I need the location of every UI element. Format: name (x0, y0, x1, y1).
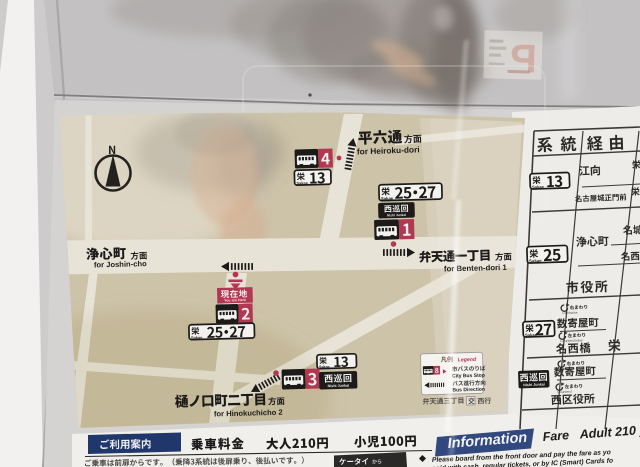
svg-text:Sakae: Sakae (532, 184, 545, 189)
svg-text:P: P (510, 37, 538, 82)
svg-text:Sakae: Sakae (381, 196, 394, 201)
svg-text:Sakae: Sakae (319, 365, 330, 369)
svg-text:Bus Direction: Bus Direction (452, 387, 485, 394)
svg-text:Legend: Legend (458, 357, 477, 364)
svg-text:Nishi Junkai: Nishi Junkai (387, 213, 406, 218)
svg-text:Fare: Fare (542, 428, 569, 444)
svg-text:You are Here: You are Here (224, 298, 246, 303)
svg-text:Countercl: Countercl (557, 390, 572, 395)
svg-text:City Bus Stop: City Bus Stop (452, 373, 485, 380)
svg-text:Clockwise: Clockwise (562, 311, 578, 316)
svg-text:Sakae: Sakae (191, 335, 203, 340)
svg-text:for Joshin-cho: for Joshin-cho (94, 259, 147, 269)
svg-text:Counterclockw: Counterclockw (560, 338, 583, 343)
svg-text:Nishi Junkai: Nishi Junkai (523, 382, 545, 387)
svg-text:Sakae: Sakae (296, 180, 308, 185)
svg-text:Sakae: Sakae (529, 258, 542, 263)
svg-text:Nishi Junkai: Nishi Junkai (328, 384, 350, 389)
svg-text:for Hinokuchicho 2: for Hinokuchicho 2 (214, 408, 283, 419)
